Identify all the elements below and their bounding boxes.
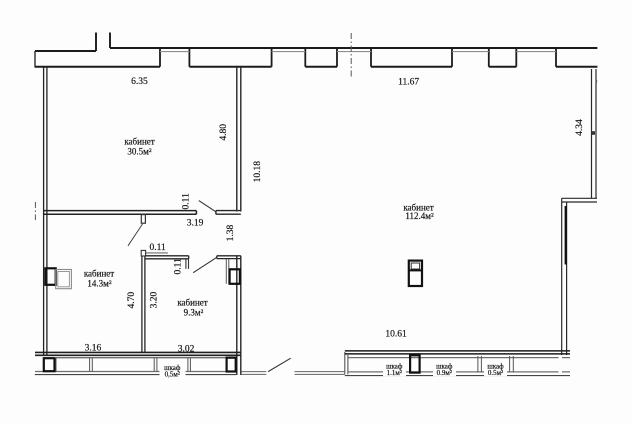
svg-text:0.11: 0.11 — [173, 258, 183, 275]
svg-text:кабинет: кабинет — [177, 298, 207, 308]
svg-text:10.61: 10.61 — [385, 330, 407, 340]
svg-text:112.4м²: 112.4м² — [405, 211, 434, 221]
svg-text:3.20: 3.20 — [149, 291, 159, 308]
svg-text:9.3м²: 9.3м² — [184, 308, 204, 318]
svg-text:14.3м²: 14.3м² — [87, 279, 111, 289]
svg-text:0.11: 0.11 — [149, 243, 166, 253]
svg-text:0,5м²: 0,5м² — [165, 371, 180, 379]
svg-text:3.02: 3.02 — [178, 344, 195, 354]
svg-text:11.67: 11.67 — [398, 77, 419, 87]
svg-text:кабинет: кабинет — [124, 137, 154, 147]
svg-text:30.5м²: 30.5м² — [127, 147, 151, 157]
svg-text:3.16: 3.16 — [85, 343, 102, 353]
svg-text:4.80: 4.80 — [219, 124, 229, 141]
svg-text:3.19: 3.19 — [187, 219, 204, 229]
svg-text:1.1м²: 1.1м² — [387, 369, 402, 377]
svg-text:1.38: 1.38 — [226, 225, 236, 242]
svg-text:кабинет: кабинет — [84, 269, 114, 279]
svg-text:0.11: 0.11 — [182, 193, 192, 210]
svg-text:10.18: 10.18 — [253, 161, 263, 183]
svg-text:6.35: 6.35 — [131, 77, 148, 87]
svg-text:0.9м²: 0.9м² — [437, 369, 452, 377]
svg-text:4.70: 4.70 — [127, 292, 137, 309]
svg-text:4.34: 4.34 — [575, 119, 585, 136]
svg-text:0.5м²: 0.5м² — [488, 369, 503, 377]
